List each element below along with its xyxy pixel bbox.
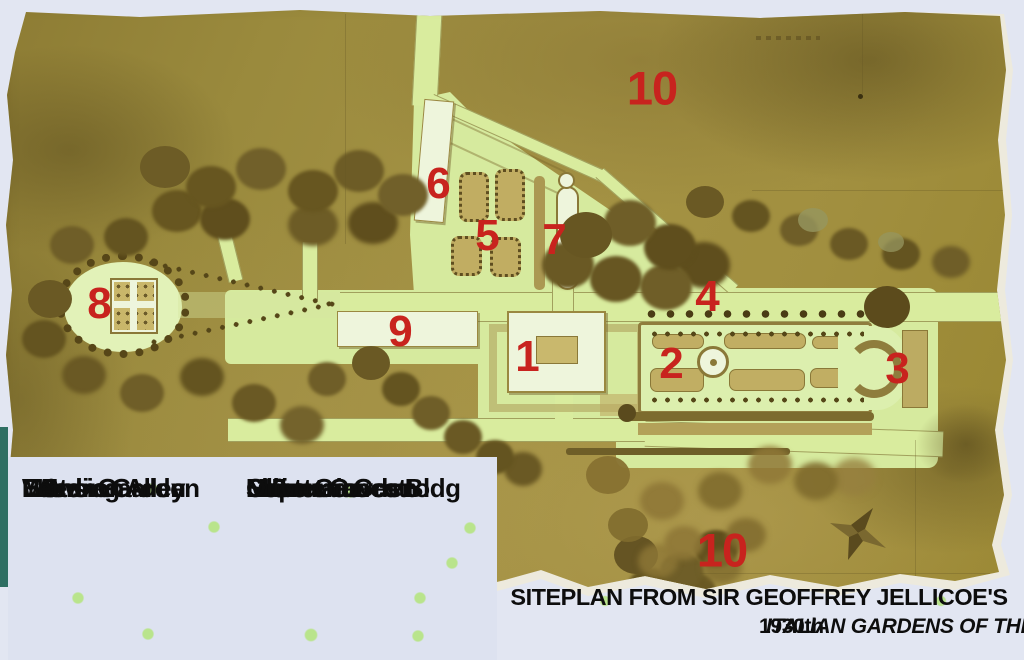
map-label-maintenance: 9 [388, 310, 411, 354]
allee-tree-row [146, 297, 342, 350]
grotto-cross-path [130, 280, 137, 332]
tree-row-northeast-road [686, 186, 724, 218]
tree-cluster-northwest [140, 146, 190, 188]
parterre-bed [812, 336, 856, 349]
mansion-zone [478, 292, 656, 426]
legend-item-label: Olive Groves [246, 473, 400, 504]
grotto-parterre-beds [114, 282, 154, 330]
mansion-terrace [489, 324, 645, 412]
parterre-bed [810, 368, 856, 388]
south-hedge [628, 412, 874, 421]
grotto-tree-ring [56, 252, 190, 358]
maintenance-zone [225, 290, 545, 364]
fountain-center [710, 359, 717, 366]
compass-star-icon [825, 503, 891, 565]
tree-cluster-center [352, 346, 390, 380]
pencil-line [862, 14, 863, 94]
grotto-allee-lawn [178, 292, 348, 318]
mansion-courtyard [536, 336, 578, 364]
grotto-cross-path [112, 301, 156, 308]
exedra-steps [902, 330, 928, 408]
water-garden-tree-row [648, 330, 864, 338]
upper-garden-zone [408, 88, 753, 328]
map-label-secret-garden: 7 [542, 218, 565, 262]
north-south-path [302, 242, 318, 300]
ink-speck [858, 94, 863, 99]
north-access-road [412, 11, 443, 106]
fountain-circle [697, 346, 729, 378]
pencil-line [752, 190, 1007, 191]
legend-panel: 1Mansion 2Water Garden 3Exedra 4Bowling … [8, 457, 497, 660]
water-garden [638, 322, 872, 414]
lemon-garden-plot [490, 237, 521, 277]
courtyard-approach-path [552, 240, 574, 318]
mansion-steps [600, 394, 644, 416]
tree-by-exedra [864, 286, 910, 328]
wedge-hatch-line [441, 138, 578, 203]
parterre-bed [652, 334, 704, 349]
allee-tree-row [143, 256, 337, 312]
sage-shrub [798, 208, 828, 232]
caption-line-1: SITEPLAN FROM SIR GEOFFREY JELLICOE'S [498, 584, 1020, 611]
bowling-alley-tree-row [642, 306, 870, 322]
limonaia-building [414, 99, 455, 223]
wedge-hatch-line [447, 116, 566, 173]
lower-hedge [566, 448, 790, 455]
caption-book-title: ITALIAN GARDENS OF THE RENAISSANCE [766, 615, 1024, 639]
photo-edge-strip [0, 427, 8, 587]
lemon-garden-plot [459, 172, 489, 222]
siteplan-page: 10 6 5 7 8 4 9 1 2 3 10 1Mansion 2Water … [0, 0, 1024, 660]
lemon-garden-plot [451, 236, 482, 276]
main-east-west-road [340, 292, 1006, 322]
water-garden-tree-row [648, 396, 864, 404]
diagonal-road-upper [429, 94, 608, 183]
olive-grove-blobs [586, 456, 630, 494]
olive-grove-blobs [608, 508, 648, 542]
parterre-bed [650, 368, 704, 392]
map-label-mansion: 1 [515, 335, 538, 379]
exedra-hemicycle [846, 340, 902, 398]
water-garden-zone [616, 288, 938, 468]
grotto-parterre [110, 278, 158, 334]
map-label-limonaia: 6 [426, 162, 449, 206]
exedra-lawn [838, 326, 910, 410]
pencil-line [915, 440, 916, 580]
sage-shrub [878, 232, 904, 252]
maintenance-building [337, 311, 478, 347]
south-terrace-road [228, 418, 648, 442]
caption: SITEPLAN FROM SIR GEOFFREY JELLICOE'S 19… [498, 584, 1020, 615]
map-label-water-garden: 2 [659, 342, 682, 386]
parterre-bed [729, 369, 805, 391]
map-label-exedra: 3 [885, 347, 908, 391]
tree-cluster-secret-garden [560, 212, 612, 258]
terrace-connector-path [555, 392, 573, 424]
map-label-olive-groves-north: 10 [627, 65, 677, 112]
mansion-building [507, 311, 606, 393]
south-road-east [645, 421, 944, 457]
pencil-line [700, 573, 990, 574]
corner-tree [618, 404, 636, 422]
map-label-olive-groves-south: 10 [697, 527, 747, 574]
diagonal-road-lower [595, 168, 738, 295]
legend-item-label: Lemon Garden [22, 473, 199, 504]
neptune-grotto-clearing [64, 262, 182, 352]
tree-cluster-south [614, 536, 658, 574]
pencil-notation [756, 36, 820, 40]
pencil-line [345, 14, 346, 244]
secret-garden-basin [558, 172, 575, 189]
south-terrace-band [638, 423, 872, 435]
lemon-garden-plot [495, 169, 525, 221]
west-curved-path [212, 211, 243, 283]
map-label-neptune-grotto: 8 [87, 282, 110, 326]
map-label-lemon-garden: 5 [475, 214, 498, 258]
map-label-bowling-alley: 4 [695, 275, 718, 319]
parterre-bed [724, 333, 806, 349]
secret-garden-hedge [534, 176, 545, 290]
secret-garden-pool [556, 186, 579, 290]
tree-cluster-grotto [28, 280, 72, 318]
